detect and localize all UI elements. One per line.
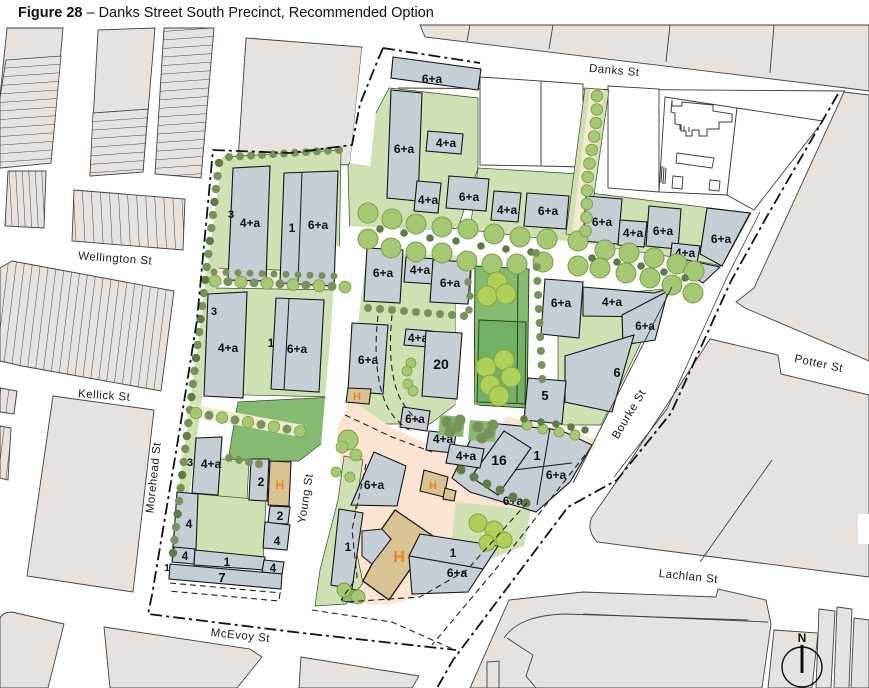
svg-text:7: 7 <box>218 570 225 585</box>
svg-text:4+a: 4+a <box>436 136 457 150</box>
svg-text:4: 4 <box>186 517 193 531</box>
svg-text:2: 2 <box>277 509 284 523</box>
svg-text:6: 6 <box>613 365 620 380</box>
svg-text:4+a: 4+a <box>456 449 477 463</box>
svg-text:4+a: 4+a <box>218 341 239 355</box>
svg-text:6+a: 6+a <box>711 232 732 246</box>
svg-text:6+a: 6+a <box>358 353 379 367</box>
svg-text:4+a: 4+a <box>201 457 222 471</box>
svg-text:6+a: 6+a <box>405 414 425 426</box>
svg-text:6+a: 6+a <box>635 321 655 333</box>
svg-text:1: 1 <box>224 557 231 569</box>
svg-text:4+a: 4+a <box>418 193 439 207</box>
svg-text:Figure 28 – Danks Street South: Figure 28 – Danks Street South Precinct,… <box>18 5 434 21</box>
svg-text:H: H <box>276 478 285 492</box>
svg-text:6+a: 6+a <box>373 266 394 280</box>
svg-text:5: 5 <box>541 388 548 403</box>
svg-text:1: 1 <box>533 448 540 463</box>
svg-text:3: 3 <box>228 209 234 221</box>
svg-text:3: 3 <box>187 457 193 469</box>
svg-text:6+a: 6+a <box>546 468 567 482</box>
svg-text:1: 1 <box>289 221 296 235</box>
svg-text:3: 3 <box>211 306 217 318</box>
svg-text:N: N <box>798 631 807 645</box>
svg-text:6+a: 6+a <box>440 276 461 290</box>
svg-text:16: 16 <box>491 452 507 468</box>
svg-text:H: H <box>353 391 361 403</box>
svg-text:6+a: 6+a <box>394 142 415 156</box>
svg-text:6+a: 6+a <box>308 218 329 232</box>
svg-text:H: H <box>393 549 405 566</box>
svg-text:1: 1 <box>268 336 275 350</box>
svg-text:4: 4 <box>274 534 281 548</box>
svg-text:6+a: 6+a <box>447 566 468 580</box>
svg-text:20: 20 <box>433 356 449 372</box>
svg-text:6+a: 6+a <box>538 204 559 218</box>
svg-text:6+a: 6+a <box>592 215 613 229</box>
svg-text:4+a: 4+a <box>602 295 623 309</box>
svg-text:6+a: 6+a <box>459 190 480 204</box>
svg-text:2: 2 <box>258 475 265 489</box>
svg-text:6+a: 6+a <box>653 224 674 238</box>
svg-text:1: 1 <box>345 540 352 554</box>
svg-text:1: 1 <box>450 546 457 560</box>
svg-text:4+a: 4+a <box>240 216 261 230</box>
svg-text:4+a: 4+a <box>623 226 644 240</box>
svg-text:4+a: 4+a <box>497 203 518 217</box>
svg-text:1: 1 <box>164 563 170 574</box>
svg-text:H: H <box>429 480 437 492</box>
svg-text:4+a: 4+a <box>410 263 431 277</box>
svg-text:6+a: 6+a <box>364 478 385 492</box>
svg-text:6+a: 6+a <box>287 342 308 356</box>
svg-text:6+a: 6+a <box>551 296 572 310</box>
svg-text:4: 4 <box>182 551 189 563</box>
svg-text:6+a: 6+a <box>422 72 443 86</box>
